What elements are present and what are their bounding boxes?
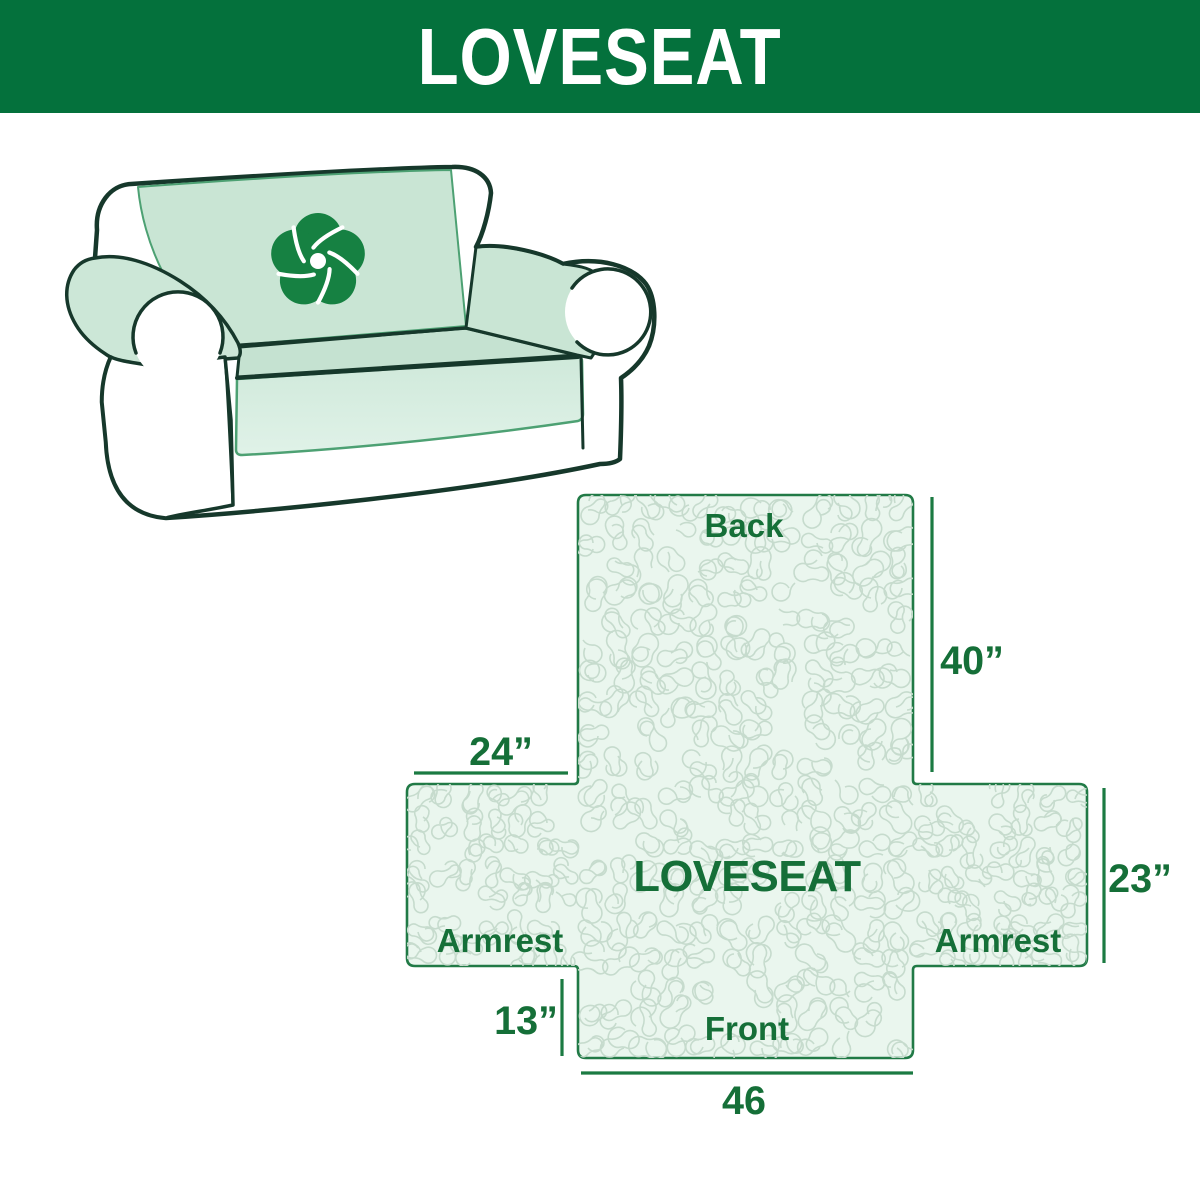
svg-text:Back: Back (705, 507, 785, 544)
svg-text:46: 46 (722, 1079, 766, 1123)
svg-text:LOVESEAT: LOVESEAT (633, 853, 861, 901)
svg-text:Armrest: Armrest (437, 922, 564, 959)
svg-text:40”: 40” (940, 639, 1004, 683)
svg-text:13”: 13” (494, 999, 558, 1043)
svg-text:Armrest: Armrest (935, 922, 1062, 959)
svg-text:Front: Front (705, 1010, 789, 1047)
svg-text:23”: 23” (1108, 857, 1172, 901)
svg-text:24”: 24” (469, 730, 533, 774)
